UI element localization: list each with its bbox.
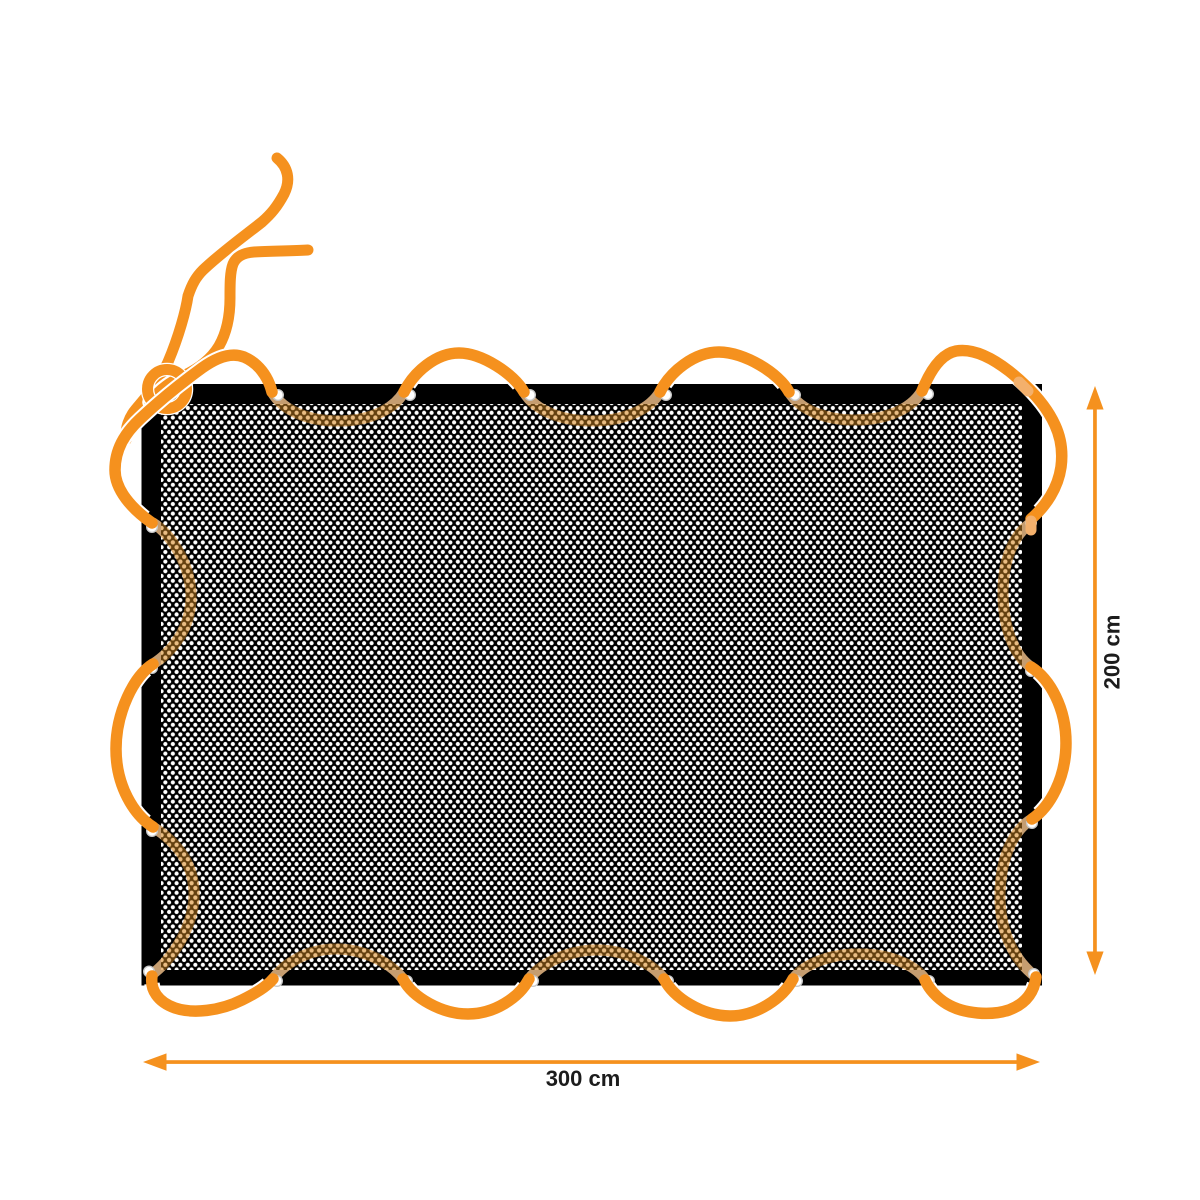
- svg-text:200 cm: 200 cm: [1100, 615, 1125, 690]
- svg-text:300 cm: 300 cm: [546, 1066, 621, 1091]
